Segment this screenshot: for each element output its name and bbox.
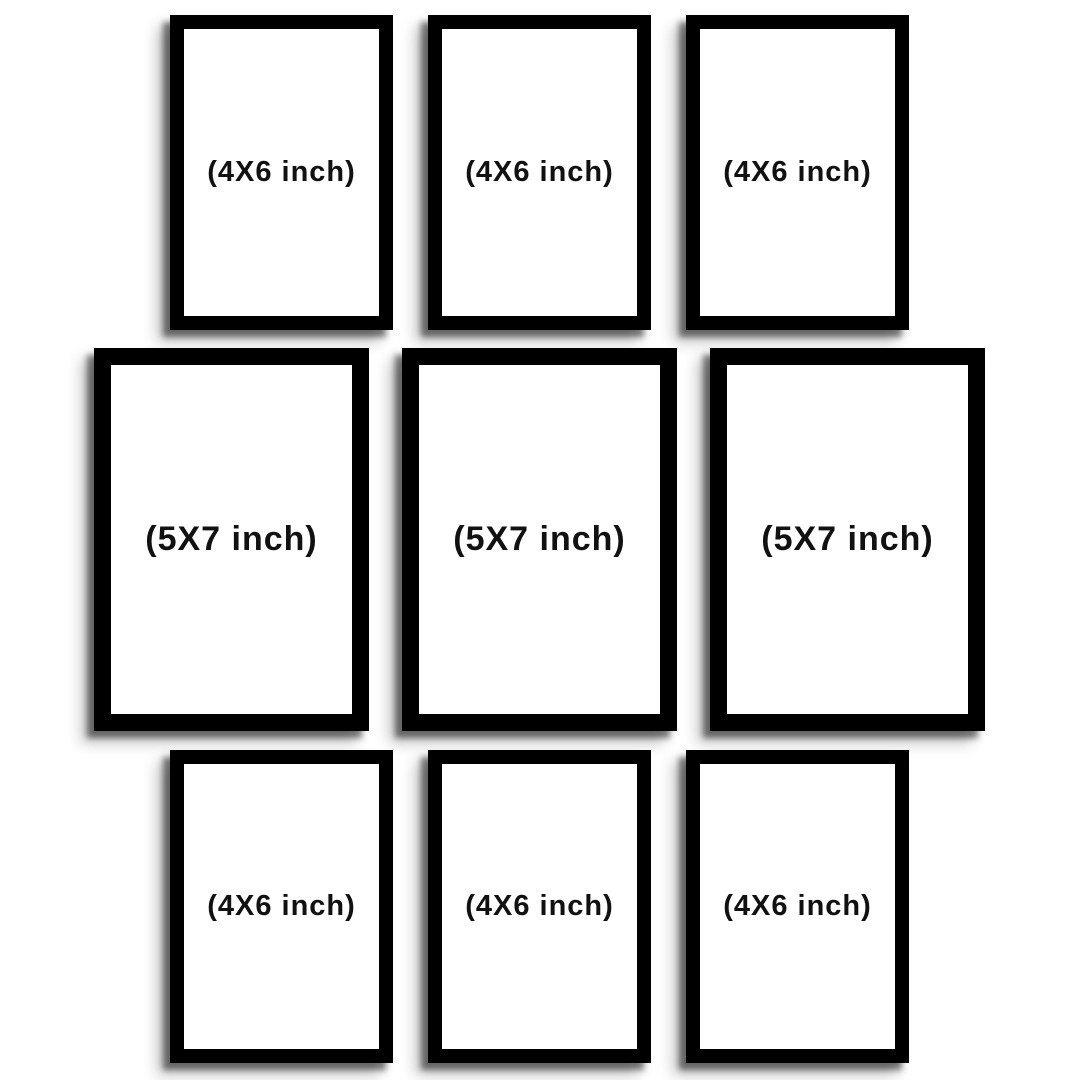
frame-size-label: (5X7 inch) xyxy=(761,520,933,559)
frame-size-label: (4X6 inch) xyxy=(207,156,356,189)
frame-size-label: (4X6 inch) xyxy=(465,890,614,923)
photo-frame-middle-left: (5X7 inch) xyxy=(94,348,369,731)
photo-frame-top-center: (4X6 inch) xyxy=(428,15,651,330)
photo-frame-middle-right: (5X7 inch) xyxy=(710,348,985,731)
frame-size-label: (4X6 inch) xyxy=(723,890,872,923)
photo-frame-bottom-center: (4X6 inch) xyxy=(428,750,651,1063)
frame-size-label: (4X6 inch) xyxy=(723,156,872,189)
frame-size-label: (4X6 inch) xyxy=(207,890,356,923)
photo-frame-bottom-left: (4X6 inch) xyxy=(170,750,393,1063)
photo-frame-middle-center: (5X7 inch) xyxy=(402,348,677,731)
frame-size-label: (5X7 inch) xyxy=(145,520,317,559)
photo-frame-bottom-right: (4X6 inch) xyxy=(686,750,909,1063)
frame-set-canvas: (4X6 inch) (4X6 inch) (4X6 inch) (5X7 in… xyxy=(0,0,1080,1080)
frame-size-label: (5X7 inch) xyxy=(453,520,625,559)
photo-frame-top-left: (4X6 inch) xyxy=(170,15,393,330)
photo-frame-top-right: (4X6 inch) xyxy=(686,15,909,330)
frame-size-label: (4X6 inch) xyxy=(465,156,614,189)
